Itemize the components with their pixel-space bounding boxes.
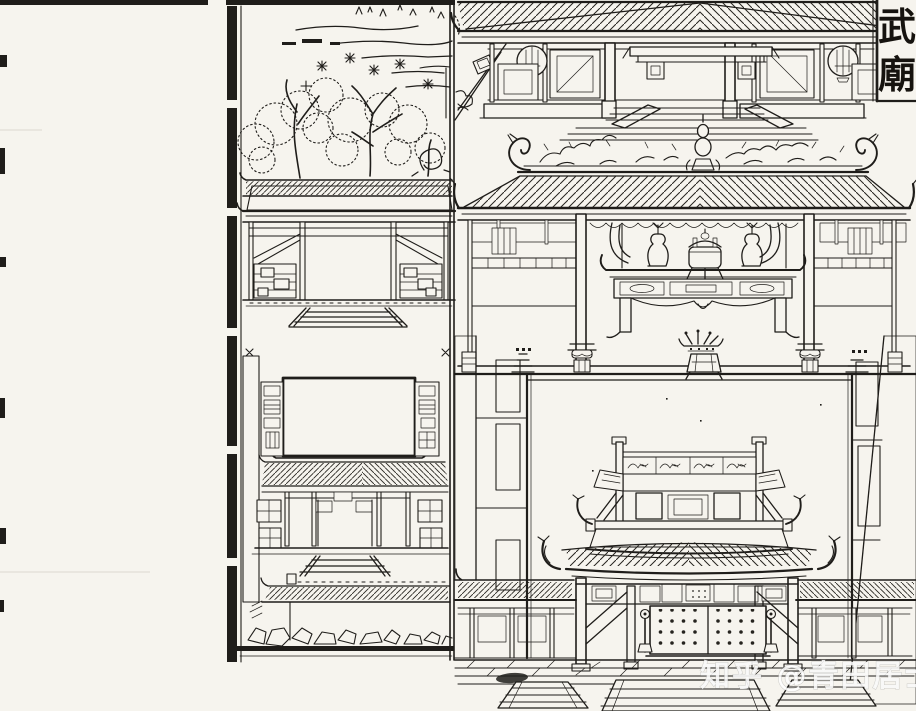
page-borders: [0, 0, 455, 662]
terrace-steps: [480, 105, 866, 140]
woodblock-print-scan: 武 廟 知乎 @青田居士: [0, 0, 916, 711]
title-char-1: 武: [878, 5, 916, 49]
garden-wall: [240, 173, 452, 196]
right-side-gallery: [796, 580, 916, 658]
watermark: 知乎 @青田居士: [700, 659, 916, 694]
perimeter-wall-rocks: [228, 574, 454, 656]
entrance-gate: [455, 536, 916, 671]
left-hatched-wall: [455, 336, 476, 580]
stage-structure: [573, 437, 805, 558]
left-side-gallery: [455, 569, 576, 658]
incense-stand: [679, 330, 723, 380]
gate-pavilion: [237, 186, 455, 356]
title-char-2: 廟: [878, 53, 916, 97]
right-page: 武 廟: [450, 0, 916, 711]
inner-hall: [252, 455, 450, 576]
studded-door: [646, 606, 770, 656]
worship-pavilion: [450, 115, 916, 379]
temple-illustration: 武 廟 知乎 @青田居士: [0, 0, 916, 711]
main-hall: [451, 2, 912, 120]
title-cartouche: 武 廟: [873, 0, 916, 101]
ornate-ridge: [508, 115, 878, 172]
left-page: [0, 0, 455, 662]
